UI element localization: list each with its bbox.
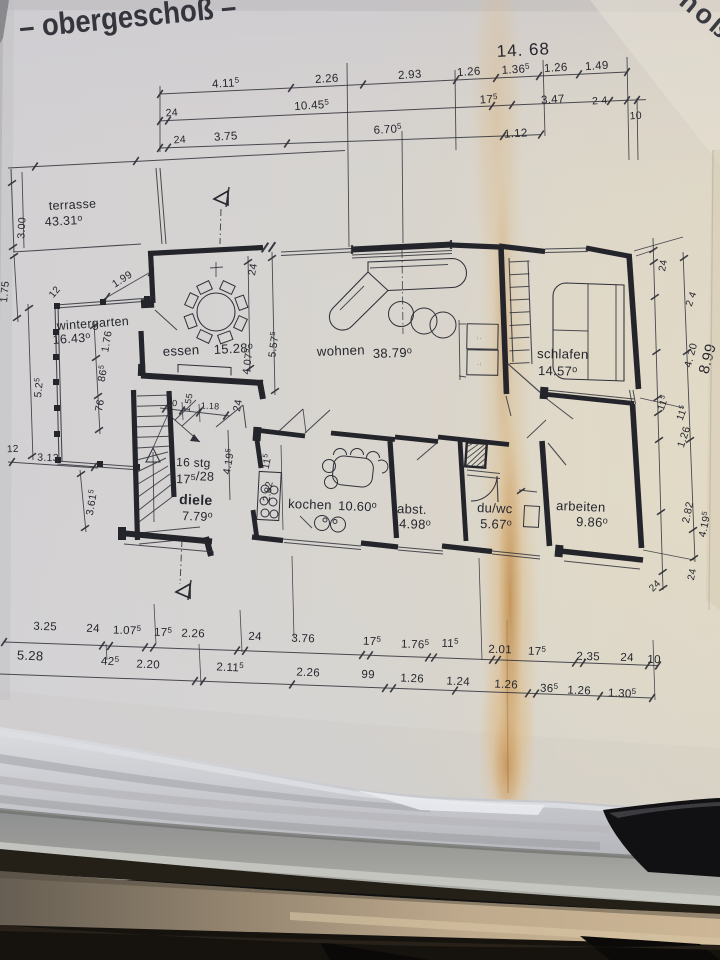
svg-text:du/wc: du/wc <box>477 500 513 516</box>
svg-text:2.93: 2.93 <box>398 69 422 82</box>
svg-text:3.75: 3.75 <box>214 130 238 143</box>
svg-text:schlafen: schlafen <box>537 346 589 362</box>
svg-text:1.26: 1.26 <box>567 684 591 697</box>
svg-text:43.31o: 43.31o <box>44 213 83 229</box>
svg-text:1.26: 1.26 <box>457 66 481 79</box>
svg-text:abst.: abst. <box>397 501 427 517</box>
svg-text:1.26: 1.26 <box>494 678 518 691</box>
svg-text:24: 24 <box>231 398 245 412</box>
svg-text:1.26: 1.26 <box>400 672 424 685</box>
svg-text:diele: diele <box>179 491 213 508</box>
svg-text:1.24: 1.24 <box>446 675 470 688</box>
svg-text:24: 24 <box>173 134 186 147</box>
svg-text:14. 68: 14. 68 <box>496 39 550 61</box>
svg-text:2.20: 2.20 <box>136 658 160 671</box>
svg-text:14.57o: 14.57o <box>538 363 578 379</box>
svg-text:2.26: 2.26 <box>296 666 320 679</box>
svg-text:essen: essen <box>162 342 199 359</box>
svg-text:24: 24 <box>248 631 262 643</box>
svg-text:3.25: 3.25 <box>33 621 57 634</box>
svg-text:· :: · : <box>477 362 481 368</box>
svg-text:1.12: 1.12 <box>504 127 528 140</box>
svg-text:24: 24 <box>620 652 634 664</box>
svg-text:24: 24 <box>86 623 100 635</box>
svg-text:38.79o: 38.79o <box>373 345 413 361</box>
svg-text:16 stg: 16 stg <box>176 455 211 470</box>
svg-text:arbeiten: arbeiten <box>556 498 606 515</box>
svg-text:: ·: : · <box>477 336 482 342</box>
svg-text:24: 24 <box>165 107 178 120</box>
svg-text:10: 10 <box>629 110 642 123</box>
svg-text:99: 99 <box>361 669 375 682</box>
svg-text:1.26: 1.26 <box>544 62 568 75</box>
svg-text:3.00: 3.00 <box>15 217 28 239</box>
svg-text:2.01: 2.01 <box>488 644 512 657</box>
svg-text:1.49: 1.49 <box>585 60 609 73</box>
svg-text:kochen: kochen <box>288 496 332 513</box>
svg-text:2.26: 2.26 <box>315 73 339 86</box>
svg-text:2.26: 2.26 <box>181 628 205 641</box>
svg-text:16.43o: 16.43o <box>52 330 91 347</box>
svg-text:2.35: 2.35 <box>576 651 600 664</box>
svg-text:12: 12 <box>7 444 19 456</box>
svg-text:terrasse: terrasse <box>48 197 96 213</box>
svg-text:wohnen: wohnen <box>316 342 365 359</box>
svg-text:76: 76 <box>93 398 107 412</box>
svg-text:10.455: 10.455 <box>294 97 330 113</box>
svg-text:3.76: 3.76 <box>291 633 315 646</box>
svg-text:24: 24 <box>657 259 670 273</box>
svg-text:1.75: 1.75 <box>0 280 12 303</box>
svg-text:2 4: 2 4 <box>592 95 608 108</box>
svg-text:5.28: 5.28 <box>17 647 44 663</box>
svg-text:10.60o: 10.60o <box>338 498 377 514</box>
